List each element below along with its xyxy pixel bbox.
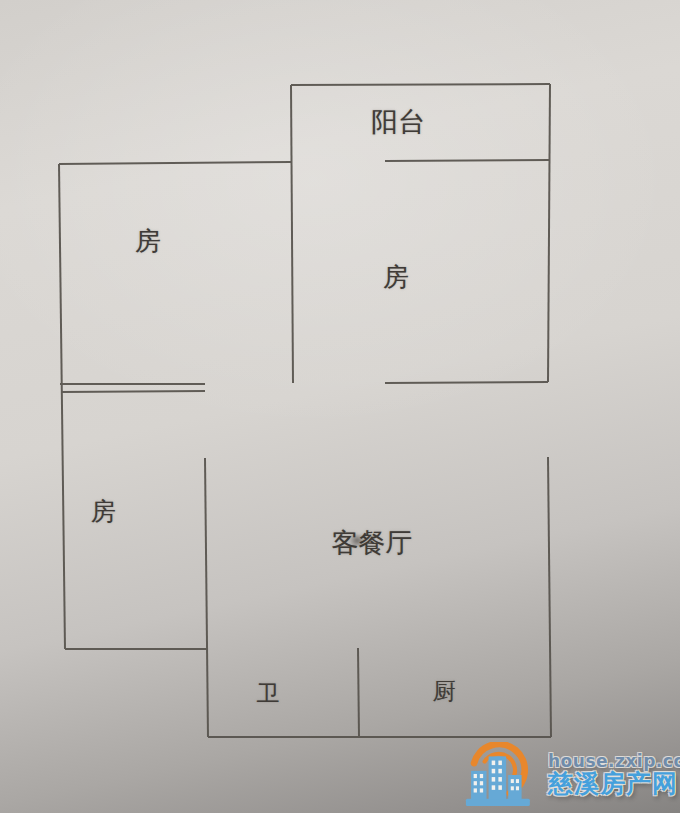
watermark-text: house.zxip.com 慈溪房产网 [548, 753, 680, 797]
wall-balcony-divider [385, 160, 549, 161]
wall-balcony-top [291, 84, 550, 85]
wall-room-lowerleft-top [62, 391, 205, 392]
wall-lower-right-vertical [548, 457, 551, 737]
wall-bath-kitchen-divider [358, 648, 359, 737]
room-label-balcony: 阳台 [371, 104, 425, 140]
wall-center-vertical [205, 458, 208, 737]
watermark-site-name: 慈溪房产网 [548, 771, 680, 797]
city-buildings-sun-icon [461, 742, 543, 808]
wall-left [59, 164, 65, 649]
wall-upper-right-vertical [548, 84, 550, 382]
floor-plan-photo: 阳台 房 房 房 客餐厅 卫 厨 [0, 0, 680, 813]
wall-room-topleft-top [59, 162, 291, 164]
room-label-bedroom-top-right: 房 [383, 260, 409, 295]
watermark: house.zxip.com 慈溪房产网 [461, 742, 680, 808]
room-label-kitchen: 厨 [433, 676, 456, 707]
walls-group [59, 84, 551, 737]
wall-room-topright-bottom [385, 382, 548, 383]
floor-plan-walls [0, 0, 680, 813]
room-label-bedroom-top-left: 房 [135, 224, 161, 259]
room-label-bathroom: 卫 [257, 678, 280, 709]
room-label-bedroom-lower-left: 房 [91, 495, 116, 528]
wall-upper-middle-vertical [291, 85, 293, 383]
room-label-living-dining: 客餐厅 [332, 525, 413, 561]
ink-smudge [348, 533, 366, 548]
